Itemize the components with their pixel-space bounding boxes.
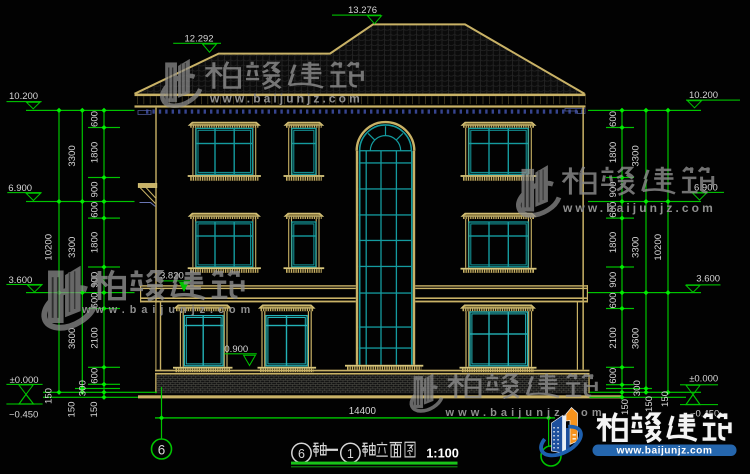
svg-text:600: 600 xyxy=(608,368,619,384)
svg-text:6: 6 xyxy=(298,447,305,461)
svg-text:150: 150 xyxy=(644,396,655,412)
svg-text:2100: 2100 xyxy=(608,327,619,348)
svg-text:13.276: 13.276 xyxy=(348,5,377,16)
svg-text:10200: 10200 xyxy=(44,234,55,261)
svg-text:3600: 3600 xyxy=(631,328,642,349)
svg-text:3.600: 3.600 xyxy=(696,274,720,285)
svg-text:1:100: 1:100 xyxy=(426,445,459,460)
svg-text:900: 900 xyxy=(90,181,101,197)
svg-text:www.baijunjz.com: www.baijunjz.com xyxy=(562,201,716,215)
svg-text:2100: 2100 xyxy=(90,327,101,348)
svg-text:±0.000: ±0.000 xyxy=(689,374,718,385)
svg-text:3300: 3300 xyxy=(67,237,78,258)
svg-text:10200: 10200 xyxy=(653,234,664,261)
svg-text:600: 600 xyxy=(90,368,101,384)
svg-text:www.baijunjz.com: www.baijunjz.com xyxy=(616,446,713,457)
svg-text:3300: 3300 xyxy=(67,145,78,166)
svg-text:3300: 3300 xyxy=(631,145,642,166)
svg-text:1: 1 xyxy=(347,447,354,461)
svg-text:600: 600 xyxy=(608,292,619,308)
svg-text:1800: 1800 xyxy=(90,232,101,253)
svg-text:150: 150 xyxy=(660,391,671,407)
svg-text:300: 300 xyxy=(78,380,89,396)
svg-text:10.200: 10.200 xyxy=(9,91,38,102)
svg-text:www.baijunjz.com: www.baijunjz.com xyxy=(81,304,255,316)
svg-text:1800: 1800 xyxy=(608,232,619,253)
svg-text:300: 300 xyxy=(632,380,643,396)
svg-text:150: 150 xyxy=(620,399,631,415)
svg-text:−0.450: −0.450 xyxy=(9,410,38,421)
svg-text:www.baijunjz.com: www.baijunjz.com xyxy=(445,407,606,419)
svg-text:900: 900 xyxy=(608,272,619,288)
svg-text:3.820: 3.820 xyxy=(160,271,184,282)
svg-text:www.baijunjz.com: www.baijunjz.com xyxy=(209,91,363,105)
svg-text:6: 6 xyxy=(158,442,166,457)
svg-text:14400: 14400 xyxy=(349,406,377,417)
svg-text:1800: 1800 xyxy=(90,142,101,163)
svg-text:150: 150 xyxy=(67,401,78,417)
svg-text:150: 150 xyxy=(89,401,100,417)
svg-text:600: 600 xyxy=(90,202,101,218)
svg-text:3600: 3600 xyxy=(67,328,78,349)
svg-text:600: 600 xyxy=(608,111,619,127)
svg-text:150: 150 xyxy=(44,388,55,404)
svg-text:3300: 3300 xyxy=(631,237,642,258)
svg-text:10.200: 10.200 xyxy=(689,90,718,101)
svg-text:600: 600 xyxy=(90,111,101,127)
svg-text:1800: 1800 xyxy=(608,142,619,163)
